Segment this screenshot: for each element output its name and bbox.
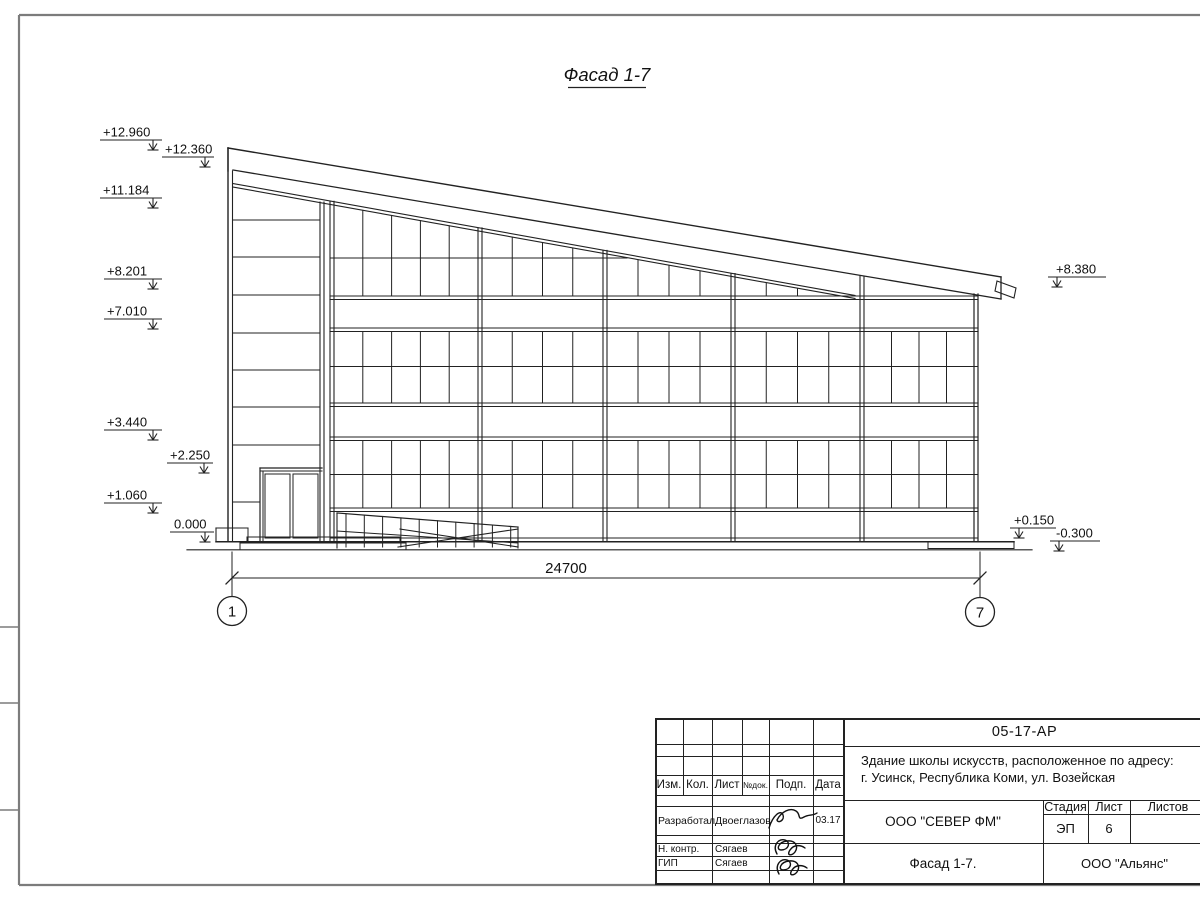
col-header-data: Дата [813,775,843,795]
stage-label: Стадия [1043,800,1088,814]
col-header-podp: Подп. [769,775,813,795]
elevation-value: +1.060 [107,488,147,503]
elevation-mark: +1.060 [104,488,162,514]
col-header-list: Лист [712,775,742,795]
view-title: Фасад 1-7 [564,64,651,88]
elevation-mark: +0.150 [1010,513,1056,539]
elevation-mark: +12.960 [100,125,162,151]
elevation-value: 0.000 [174,517,207,532]
role-ncontrol: Н. контр. [658,843,712,856]
role-developer: Разработал [658,806,712,835]
elevation-value: +2.250 [170,448,210,463]
sheet-label: Лист [1088,800,1130,814]
role-gip: ГИП [658,856,712,870]
elevation-value: +12.360 [165,142,212,157]
elevation-mark: +3.440 [104,415,162,441]
signature-developer [769,810,817,828]
elevation-mark: +7.010 [104,304,162,330]
elevation-value: -0.300 [1056,526,1093,541]
elevation-mark: 0.000 [170,517,214,543]
name-gip: Сягаев [715,856,769,870]
elevation-mark: +2.250 [167,448,213,474]
elevation-value: +8.380 [1056,262,1096,277]
col-header-izm: Изм. [655,775,683,795]
elevation-mark: +8.380 [1048,262,1106,288]
elevation-value: +3.440 [107,415,147,430]
elevation-mark: -0.300 [1050,526,1100,552]
col-header-ndok: №док. [742,775,769,795]
title-block: Изм. Кол. Лист №док. Подп. Дата Разработ… [655,718,1200,885]
elevation-mark: +11.184 [100,183,162,209]
sheets-label: Листов [1130,800,1200,814]
project-description-line1: Здание школы искусств, расположенное по … [861,752,1200,769]
signatures [765,802,819,884]
elevation-mark: +8.201 [104,264,162,290]
axis-bubble-1: 1 [218,597,247,626]
name-ncontrol: Сягаев [715,843,769,856]
sheet-title: Фасад 1-7. [843,843,1043,883]
sheet-number: 6 [1088,814,1130,843]
building-facade-lines [187,148,1032,597]
name-developer: Двоеглазов [715,806,769,835]
elevation-value: +0.150 [1014,513,1054,528]
signature-ncontrol [775,840,805,855]
contractor-company: ООО "Альянс" [1043,843,1200,883]
elevation-value: +8.201 [107,264,147,279]
elevation-value: +12.960 [103,125,150,140]
project-description: Здание школы искусств, расположенное по … [861,752,1200,798]
document-number: 05-17-АР [843,718,1200,746]
col-header-kol: Кол. [683,775,712,795]
project-description-line2: г. Усинск, Республика Коми, ул. Возейска… [861,769,1200,786]
elevation-value: +11.184 [103,183,149,198]
axis-bubble-7: 7 [966,598,995,627]
axis-label: 1 [228,604,236,621]
elevation-mark: +12.360 [162,142,214,168]
axis-label: 7 [976,605,984,622]
dimension-value: 24700 [545,560,587,577]
signature-gip [777,860,807,875]
elevation-value: +7.010 [107,304,147,319]
drawing-sheet: { "title": "Фасад 1-7", "drawing": { "le… [0,0,1200,900]
stage-value: ЭП [1043,814,1088,843]
view-title-text: Фасад 1-7 [564,64,651,85]
design-company: ООО "СЕВЕР ФМ" [843,800,1043,843]
